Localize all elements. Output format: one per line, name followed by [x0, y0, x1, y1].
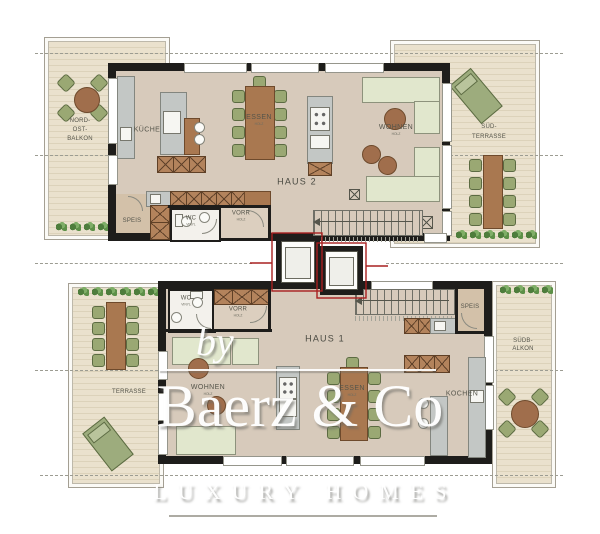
room-name: WC — [186, 216, 196, 222]
floor-material: VINYL — [181, 303, 191, 306]
room-name: VORR — [229, 307, 247, 313]
floor-material: VINYL — [186, 223, 196, 226]
room-label-wc-haus1: WCVINYL — [177, 296, 194, 309]
room-label-speis-haus1: SPEIS — [461, 304, 480, 310]
floor-material: HOLZ — [236, 218, 246, 221]
watermark-underline — [169, 515, 437, 517]
watermark-brand: Baerz & Co — [157, 372, 444, 441]
unit-label-haus2: HAUS 2 — [277, 177, 317, 186]
room-label-kueche: KÜCHE — [134, 126, 161, 133]
room-label-speis-haus2: SPEIS — [123, 218, 142, 224]
unit-label-haus1: HAUS 1 — [305, 334, 345, 343]
room-name: VORR — [232, 211, 250, 217]
balcony-south-label-1: SÜDB- — [513, 338, 533, 344]
watermark-rule — [160, 369, 436, 371]
watermark-by: by — [196, 318, 234, 365]
room-label-wc-haus2: WCVINYL — [182, 216, 199, 229]
fire-separation-line — [0, 0, 600, 534]
room-name: ESSEN — [246, 114, 272, 121]
floor-material: HOLZ — [233, 314, 243, 317]
balcony-south-label-2: ALKON — [512, 346, 533, 352]
room-label-wohnen-haus2: WOHNENHOLZ — [379, 124, 413, 138]
balcony-ne-label-3: BALKON — [67, 136, 93, 142]
floor-plan: NORD- OST- BALKON KÜCHE ESSENHOLZ WOHNEN… — [0, 0, 600, 534]
terrace-label-haus1: TERRASSE — [112, 389, 146, 395]
terrace-south-label-2: TERRASSE — [472, 134, 506, 140]
floor-material: HOLZ — [387, 133, 406, 136]
room-label-kochen: KOCHEN — [446, 390, 478, 397]
room-label-vorr-haus2: VORRHOLZ — [232, 211, 250, 224]
terrace-south-label-1: SÜD- — [481, 124, 496, 130]
floor-material: HOLZ — [252, 123, 266, 126]
room-label-essen-haus2: ESSENHOLZ — [246, 114, 272, 128]
balcony-ne-label-1: NORD- — [70, 118, 91, 124]
room-name: WOHNEN — [379, 124, 413, 131]
watermark-tagline: LUXURY HOMES — [142, 479, 457, 505]
balcony-ne-label-2: OST- — [73, 127, 88, 133]
room-name: WC — [181, 296, 191, 302]
